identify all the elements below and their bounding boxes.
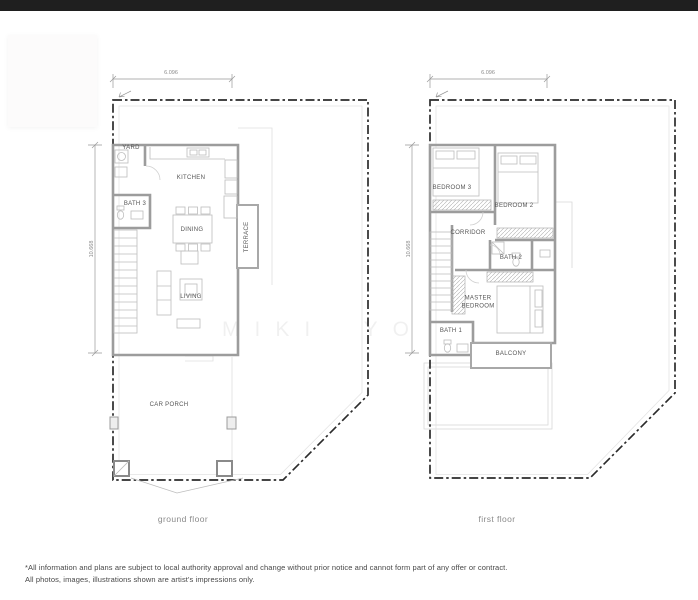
room-label-bath1: BATH 1 <box>440 328 462 334</box>
gf-dimension-lines <box>88 74 235 356</box>
room-label-bath3: BATH 3 <box>124 201 146 207</box>
room-label-kitchen: KITCHEN <box>177 175 205 181</box>
ff-depth-dimension: 10.668 <box>406 241 412 258</box>
room-label-bedroom3: BEDROOM 3 <box>433 185 472 191</box>
room-label-terrace: TERRACE <box>244 222 250 253</box>
ground-floor-plan <box>88 74 368 493</box>
room-label-living: LIVING <box>180 294 201 300</box>
room-label-bedroom2: BEDROOM 2 <box>495 203 534 209</box>
gf-boundary-line <box>113 100 368 480</box>
room-label-bath2: BATH 2 <box>500 255 522 261</box>
disclaimer-line-1: *All information and plans are subject t… <box>25 563 508 572</box>
first-floor-plan <box>405 74 675 478</box>
first-floor-caption: first floor <box>479 514 516 524</box>
brochure-page: MIKI YO <box>0 0 698 600</box>
gf-carporch-elements <box>110 417 243 493</box>
room-label-master-bedroom: MASTER BEDROOM <box>459 296 497 311</box>
room-label-yard: YARD <box>122 145 139 151</box>
gf-depth-dimension: 10.668 <box>89 241 95 258</box>
gf-setback-line <box>119 106 362 475</box>
ff-stairs <box>430 232 452 310</box>
gf-walls <box>113 145 238 355</box>
room-label-corridor: CORRIDOR <box>450 230 485 236</box>
gf-width-dimension: 6.096 <box>164 70 178 76</box>
disclaimer-line-2: All photos, images, illustrations shown … <box>25 575 255 584</box>
room-label-car-porch: CAR PORCH <box>150 402 189 408</box>
ff-width-dimension: 6.096 <box>481 70 495 76</box>
floor-plans-drawing <box>0 0 698 600</box>
room-label-balcony: BALCONY <box>496 351 527 357</box>
room-label-dining: DINING <box>181 227 204 233</box>
gf-stairs <box>114 230 137 333</box>
ground-floor-caption: ground floor <box>158 514 208 524</box>
